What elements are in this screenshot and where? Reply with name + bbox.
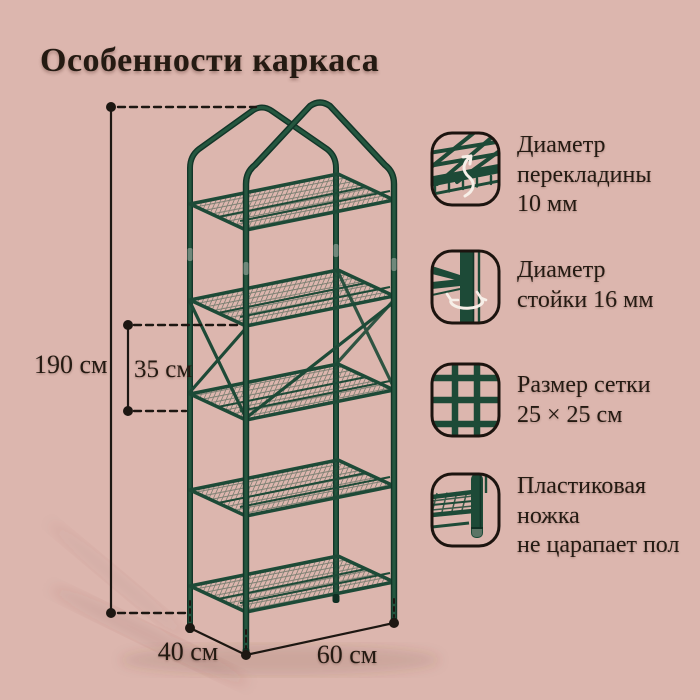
tier-gap-dimension-label: 35 см [134, 356, 192, 384]
shelf-1 [190, 174, 394, 230]
crossbar-diameter-icon [429, 130, 502, 208]
callout-plastic-foot: Пластиковая ножка не царапает пол [429, 471, 679, 561]
callout-text: Пластиковая ножка не царапает пол [517, 472, 679, 561]
depth-dimension-label: 40 см [148, 637, 228, 667]
shelf-4 [190, 460, 394, 516]
callout-text: Размер сетки 25 × 25 см [517, 371, 651, 430]
callout-mesh-size: Размер сетки 25 × 25 см [429, 361, 651, 439]
infographic-frame-features: Особенности каркаса 190 см 35 см 40 см 6… [0, 0, 700, 700]
callout-crossbar-diameter: Диаметр перекладины 10 мм [429, 130, 651, 220]
mesh-size-icon [429, 361, 502, 439]
height-dimension-label: 190 см [34, 350, 108, 380]
callout-text: Диаметр стойки 16 мм [517, 256, 654, 315]
shelf-5 [190, 556, 394, 612]
width-dimension-label: 60 см [300, 640, 394, 670]
callout-post-diameter: Диаметр стойки 16 мм [429, 248, 654, 326]
shelf-3 [190, 364, 394, 420]
shelves [190, 174, 394, 612]
plastic-foot-icon [429, 471, 502, 549]
shelf-2 [190, 270, 394, 326]
tube-joints [188, 244, 397, 275]
callout-text: Диаметр перекладины 10 мм [517, 131, 651, 220]
post-diameter-icon [429, 248, 502, 326]
page-title: Особенности каркаса [40, 42, 379, 80]
